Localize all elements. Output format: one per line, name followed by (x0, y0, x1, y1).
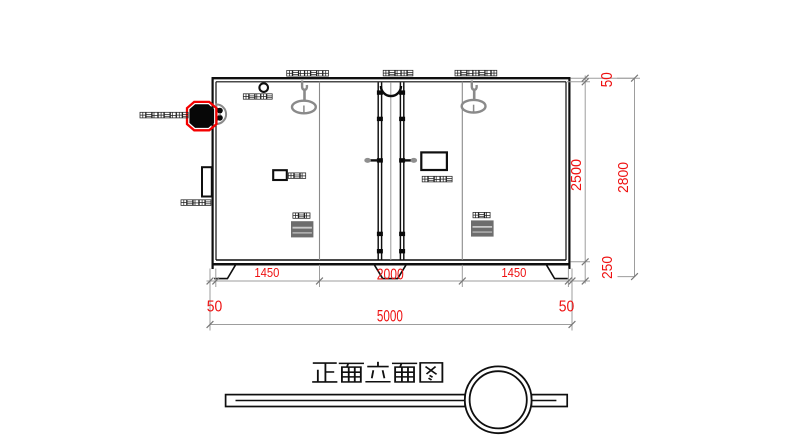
svg-text:2000: 2000 (377, 267, 404, 284)
svg-text:50: 50 (599, 72, 616, 87)
svg-text:50: 50 (207, 298, 223, 315)
svg-text:1450: 1450 (254, 265, 279, 280)
svg-text:5000: 5000 (377, 308, 403, 326)
svg-text:250: 250 (599, 256, 616, 279)
svg-text:2800: 2800 (615, 162, 632, 193)
svg-text:2500: 2500 (568, 159, 585, 191)
svg-text:1450: 1450 (501, 265, 526, 280)
svg-text:50: 50 (559, 299, 575, 316)
